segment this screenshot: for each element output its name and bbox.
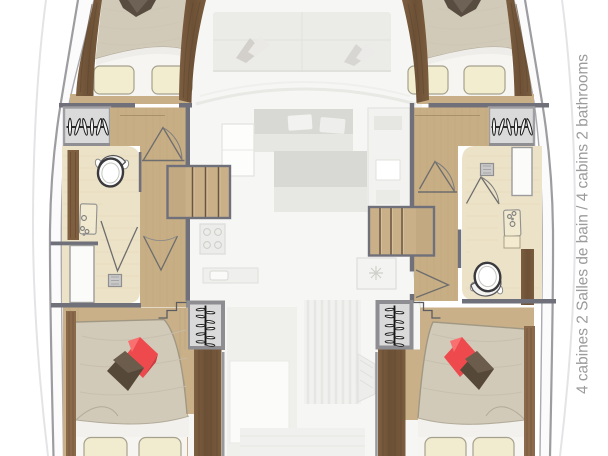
- svg-text:4 cabines 2 Salles de bain / 4: 4 cabines 2 Salles de bain / 4 cabins 2 …: [575, 54, 592, 394]
